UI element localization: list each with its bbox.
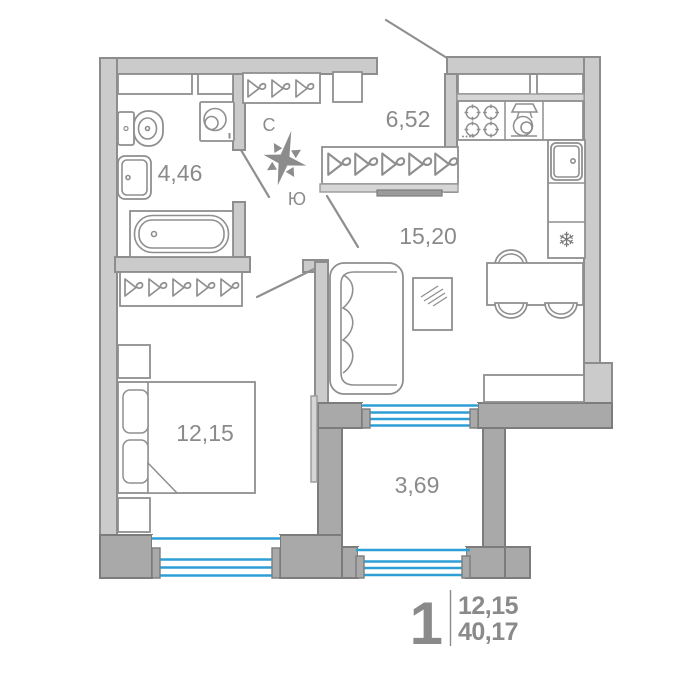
compass-rose: С Ю [257,115,313,209]
kitchen-upper-cabinet [537,74,583,94]
toilet [118,111,163,146]
sofa [330,263,403,394]
bathroom-shelf [118,74,192,94]
wall-bathroom-lower [233,202,245,260]
balcony-outer-window [356,547,470,578]
kitchen-living: ❄ 15,20 [330,74,585,402]
bedroom: 12,15 [118,272,317,532]
kitchen-counter-edge [457,94,584,101]
bathroom-shelf-small [198,74,233,94]
bedroom-window [152,535,280,578]
hall-bench [377,190,442,196]
shoe-cabinet [333,72,362,102]
washing-machine [200,102,234,141]
room-label-kitchen-living: 15,20 [399,223,457,249]
balcony-inner-window [362,403,478,428]
tv-unit [413,278,452,330]
wall-bedroom-living [315,262,328,403]
legend-total-area: 40,17 [458,618,518,646]
bedroom-door-leaf [257,269,314,297]
dining-table [487,263,583,305]
wall-top-right [447,57,600,74]
compass-south-label: Ю [288,189,306,209]
legend-room-count: 1 [410,590,442,657]
legend-living-area: 12,15 [458,592,519,620]
entrance-hall: 6,52 С Ю [243,72,458,209]
nightstand [118,498,150,532]
sideboard [484,375,584,402]
room-label-bedroom: 12,15 [176,420,234,446]
wall-right [584,57,600,363]
compass-north-label: С [263,115,276,135]
bathroom-door-leaf [241,150,269,197]
bathtub [130,211,233,257]
pillow [123,390,148,433]
bathroom: 4,46 [118,74,234,257]
room-label-hall: 6,52 [386,106,431,132]
wall-right-step [584,363,612,403]
wall-balcony-top-right [478,403,612,428]
chair [545,303,577,318]
room-label-balcony: 3,69 [395,472,440,498]
compass-star [257,126,313,191]
kitchen-sink [551,143,582,180]
legend: 1 12,15 40,17 [410,590,519,657]
wall-left [100,58,117,535]
room-label-bathroom: 4,46 [158,160,203,186]
entry-door-leaf [386,20,447,58]
chair [495,303,527,318]
wall-balcony-top-left [318,403,362,428]
pillow [123,440,148,483]
nightstand [118,345,150,378]
balcony: 3,69 [395,472,440,498]
wall-bottom-pier [280,535,342,578]
bathroom-sink [118,156,151,199]
wall-bottom-left-corner [100,535,152,578]
fridge-snowflake-icon: ❄ [558,228,576,252]
floor-plan: 4,46 6,52 С Ю [0,0,700,700]
wall-balcony-bottom-right-jamb [466,547,505,578]
wall-bathroom-bedroom [115,257,250,272]
radiator-panel [311,396,317,482]
kitchen-upper-cabinet [458,74,530,94]
living-door-leaf [327,196,358,247]
floor-plan-page: 4,46 6,52 С Ю [0,0,700,700]
